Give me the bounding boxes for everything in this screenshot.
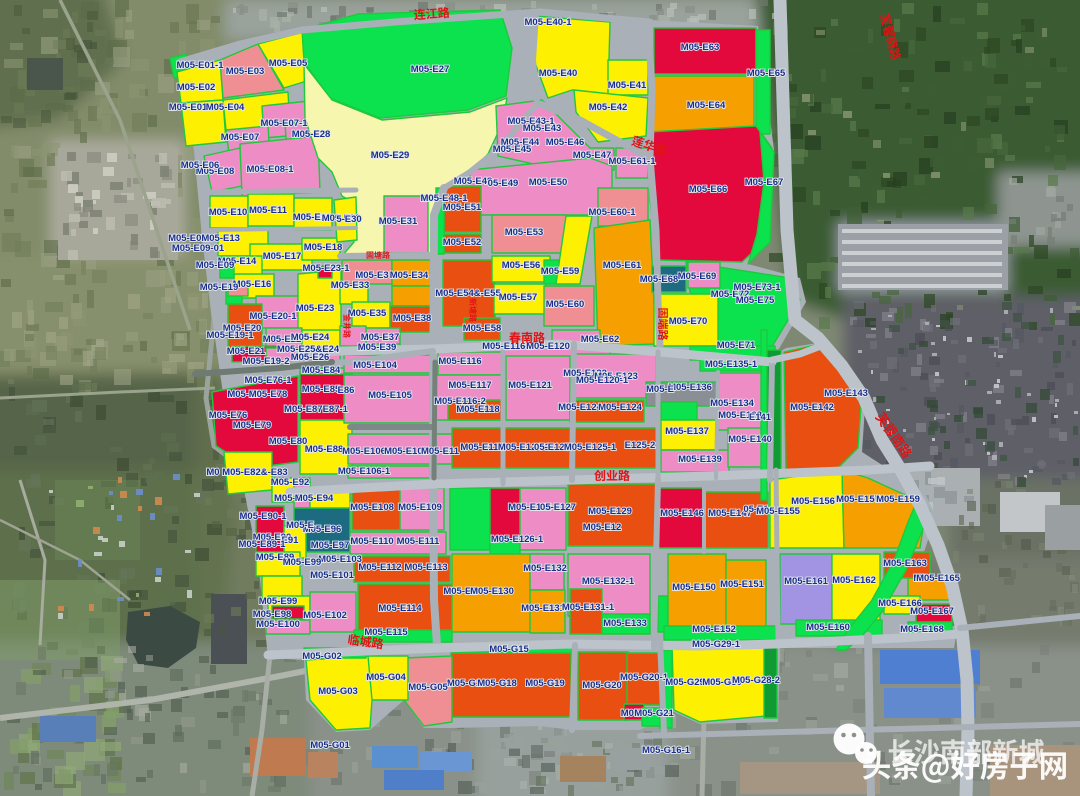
svg-text:M05-E38: M05-E38 [393,313,432,324]
svg-text:M05-E108: M05-E108 [350,502,394,513]
svg-text:M05-E35: M05-E35 [348,308,387,319]
svg-text:M05-E11: M05-E11 [249,205,288,216]
svg-text:M05-E11: M05-E11 [421,446,460,457]
svg-text:M05-E05: M05-E05 [269,58,308,69]
svg-text:M05-E161: M05-E161 [784,576,829,587]
svg-text:M05-E04: M05-E04 [206,102,245,113]
svg-text:M05-G29-1: M05-G29-1 [692,639,741,650]
svg-text:M05-E125-1: M05-E125-1 [564,442,617,453]
svg-text:M05-E85: M05-E85 [302,384,341,395]
svg-text:M05-E73-1: M05-E73-1 [734,282,782,293]
svg-text:M05-E133: M05-E133 [603,618,647,629]
svg-text:M05-E40: M05-E40 [539,68,578,79]
svg-text:M05-E159: M05-E159 [876,494,920,505]
svg-text:M05-E131: M05-E131 [521,603,566,614]
svg-text:M05-E115: M05-E115 [364,627,408,638]
svg-text:M05-E07: M05-E07 [221,132,260,143]
svg-text:M05-E24: M05-E24 [291,332,330,343]
svg-text:M05-E131-1: M05-E131-1 [562,602,615,613]
svg-text:M05-E102: M05-E102 [303,610,347,621]
svg-text:M05-E103: M05-E103 [318,554,362,565]
svg-text:M05-G20-1: M05-G20-1 [620,672,669,683]
svg-text:M05-E76-1: M05-E76-1 [245,375,293,386]
svg-text:M05-E60: M05-E60 [546,299,585,310]
svg-text:M05-E53: M05-E53 [505,227,544,238]
svg-text:M05-E09-01: M05-E09-01 [172,243,225,254]
svg-text:M05-G15: M05-G15 [489,644,529,655]
svg-text:M05-E64: M05-E64 [687,100,726,111]
svg-text:M05-E111: M05-E111 [397,536,440,547]
svg-text:M05-E39: M05-E39 [358,342,397,353]
svg-text:M05-E163: M05-E163 [883,558,927,569]
svg-text:M05-E20-1: M05-E20-1 [250,311,298,322]
svg-text:M05-G04: M05-G04 [366,672,406,683]
svg-text:M05-E120: M05-E120 [526,341,570,352]
svg-text:M05-E117: M05-E117 [448,380,491,391]
svg-text:M05-E50: M05-E50 [529,177,568,188]
svg-text:M05-E118: M05-E118 [456,404,499,415]
svg-text:M05-E62: M05-E62 [581,334,620,345]
svg-text:M05-G02: M05-G02 [302,651,342,662]
svg-text:M05-E52: M05-E52 [443,237,482,248]
svg-text:M05-E124: M05-E124 [598,402,643,413]
svg-text:M05-E19-2: M05-E19-2 [243,356,290,367]
svg-text:E125-2: E125-2 [625,440,656,451]
svg-text:M05-E165: M05-E165 [916,573,961,584]
svg-text:M05-E69: M05-E69 [678,271,717,282]
svg-text:M05-E: M05-E [286,520,314,531]
svg-text:M05-E84: M05-E84 [302,365,341,376]
svg-text:M05-E61: M05-E61 [603,260,642,271]
svg-text:M05-E68: M05-E68 [640,274,679,285]
svg-text:M05-E61-1: M05-E61-1 [609,156,657,167]
svg-text:M05-E160: M05-E160 [806,622,850,633]
svg-text:M05-E46: M05-E46 [546,137,585,148]
svg-text:M05-E18: M05-E18 [304,242,343,253]
svg-text:M05-E31: M05-E31 [379,216,418,227]
svg-text:M05-E17: M05-E17 [263,251,302,262]
svg-text:M05-E23: M05-E23 [296,303,335,314]
svg-text:M05-E28: M05-E28 [292,129,331,140]
svg-text:M05-E16: M05-E16 [233,279,272,290]
svg-text:M05-G01: M05-G01 [310,740,350,751]
svg-text:05-E127: 05-E127 [540,502,576,513]
svg-text:M05-E155: M05-E155 [756,506,801,517]
svg-text:M05-E79: M05-E79 [233,420,272,431]
svg-text:M05-E78: M05-E78 [249,389,288,400]
svg-text:M05-G18: M05-G18 [477,678,517,689]
svg-text:M05-G05: M05-G05 [408,682,448,693]
svg-text:M05-E132-1: M05-E132-1 [582,576,635,587]
svg-text:M05-E34: M05-E34 [390,270,429,281]
svg-text:M05-E41: M05-E41 [608,80,647,91]
svg-text:M05-E124: M05-E124 [558,402,603,413]
svg-text:M05-E29: M05-E29 [371,150,410,161]
svg-text:M05-E45: M05-E45 [493,144,532,155]
svg-text:M05-E60-1: M05-E60-1 [589,207,637,218]
svg-text:M05-E01: M05-E01 [169,102,208,113]
svg-text:M05-E126-1: M05-E126-1 [491,534,544,545]
svg-text:M05-E143: M05-E143 [824,388,868,399]
svg-text:M05-E71: M05-E71 [717,340,756,351]
svg-text:M05-E109: M05-E109 [398,502,442,513]
svg-text:E141: E141 [749,412,772,423]
svg-text:M05-G16-1: M05-G16-1 [642,745,691,756]
svg-text:M05-E134: M05-E134 [710,398,755,409]
svg-text:M05-E09: M05-E09 [196,260,235,271]
svg-text:M05-E47: M05-E47 [573,150,612,161]
svg-text:M05-E121: M05-E121 [508,380,553,391]
svg-text:M05-G03: M05-G03 [318,686,358,697]
svg-text:M05-E12: M05-E12 [583,522,622,533]
svg-text:M05-E135-1: M05-E135-1 [705,359,758,370]
svg-text:M05-E65: M05-E65 [747,68,786,79]
svg-text:E86: E86 [338,385,355,396]
svg-text:M05-E116: M05-E116 [438,356,481,367]
svg-text:M05-E70: M05-E70 [669,316,708,327]
svg-text:M05-E66: M05-E66 [689,184,728,195]
svg-text:M05-E01-1: M05-E01-1 [177,60,225,71]
svg-text:M05-E99: M05-E99 [259,596,298,607]
svg-text:M05-E63: M05-E63 [681,42,720,53]
svg-text:M05-E167: M05-E167 [910,606,954,617]
svg-text:M05-E132: M05-E132 [523,563,567,574]
svg-text:M05-G28-2: M05-G28-2 [732,675,780,686]
svg-text:M05-E48: M05-E48 [454,176,493,187]
svg-text:M05-E129: M05-E129 [588,506,632,517]
svg-text:M05-E33: M05-E33 [331,280,370,291]
svg-text:M05-E157: M05-E157 [836,494,880,505]
svg-text:M05-E106-1: M05-E106-1 [338,466,391,477]
svg-text:M05-E137: M05-E137 [665,426,709,437]
svg-text:M05-E07-1: M05-E07-1 [261,118,309,129]
svg-text:M05-E19: M05-E19 [200,282,239,293]
svg-text:M05-E90-1: M05-E90-1 [240,511,288,522]
svg-text:M05-E40-1: M05-E40-1 [525,17,573,28]
svg-text:M05-E42: M05-E42 [589,102,628,113]
svg-text:M05-E56: M05-E56 [502,260,541,271]
svg-text:M05-E87E87-1: M05-E87E87-1 [284,404,349,415]
svg-text:M05-E03: M05-E03 [226,66,265,77]
svg-text:M05-E27: M05-E27 [411,64,450,75]
svg-text:M05-E19-1: M05-E19-1 [207,330,255,341]
svg-text:M05-E08-1: M05-E08-1 [247,164,295,175]
svg-text:M05-E97: M05-E97 [311,540,350,551]
svg-text:M05-E146: M05-E146 [660,508,704,519]
svg-text:M05-E26: M05-E26 [291,352,330,363]
svg-text:M05-G21: M05-G21 [634,708,674,719]
svg-text:M05-E06: M05-E06 [181,160,220,171]
svg-text:M05-E136: M05-E136 [668,382,712,393]
svg-text:M05-E67: M05-E67 [745,177,784,188]
svg-text:M05-E101: M05-E101 [310,570,355,581]
svg-text:M05-E89-1: M05-E89-1 [239,539,287,550]
svg-text:M05-E110: M05-E110 [350,536,393,547]
svg-text:M05-E92: M05-E92 [271,477,310,488]
svg-text:M05-E113: M05-E113 [404,562,447,573]
svg-text:M05-E10: M05-E10 [209,207,248,218]
svg-text:M05-E88: M05-E88 [305,444,344,455]
svg-text:M05-E23-1: M05-E23-1 [303,263,351,274]
svg-text:M05-E151: M05-E151 [720,579,765,590]
svg-text:M05-E142: M05-E142 [790,402,834,413]
svg-text:M05-E02: M05-E02 [177,82,216,93]
svg-text:M05-E: M05-E [646,384,674,395]
svg-text:M05-G20: M05-G20 [582,680,622,691]
svg-text:M05-E100: M05-E100 [256,619,300,630]
svg-text:M05-E54&-E55: M05-E54&-E55 [435,288,501,299]
svg-text:M05-E57: M05-E57 [499,292,538,303]
svg-text:M05-E120-1: M05-E120-1 [576,375,629,386]
svg-text:M05-E162: M05-E162 [832,575,876,586]
svg-text:M05-E139: M05-E139 [678,454,722,465]
svg-text:M05-E150: M05-E150 [672,582,716,593]
svg-text:M05-G29: M05-G29 [665,677,705,688]
svg-text:05-E49: 05-E49 [488,178,519,189]
svg-text:M05-E106: M05-E106 [342,446,386,457]
svg-text:5-E30: 5-E30 [336,214,361,225]
svg-text:M05-E59: M05-E59 [541,266,580,277]
svg-text:M05-E156: M05-E156 [791,496,835,507]
svg-text:M05-E140: M05-E140 [728,434,772,445]
svg-text:M05-E105: M05-E105 [368,390,413,401]
svg-text:M05-E51: M05-E51 [443,202,482,213]
svg-text:M05-E58: M05-E58 [463,323,502,334]
svg-text:M05-E114: M05-E114 [378,603,422,614]
svg-text:M05-E130: M05-E130 [470,586,514,597]
svg-text:M05-G19: M05-G19 [525,678,565,689]
svg-text:M05-E75: M05-E75 [736,295,775,306]
svg-text:M05-E99: M05-E99 [283,557,322,568]
svg-text:M05-E168: M05-E168 [900,624,944,635]
svg-text:M05-E94: M05-E94 [295,493,334,504]
svg-text:M05-E80: M05-E80 [269,436,308,447]
svg-text:M05-E104: M05-E104 [353,360,398,371]
svg-text:M05-E152: M05-E152 [692,624,736,635]
svg-text:M05-E43: M05-E43 [523,123,562,134]
svg-text:M05-E112: M05-E112 [358,562,401,573]
